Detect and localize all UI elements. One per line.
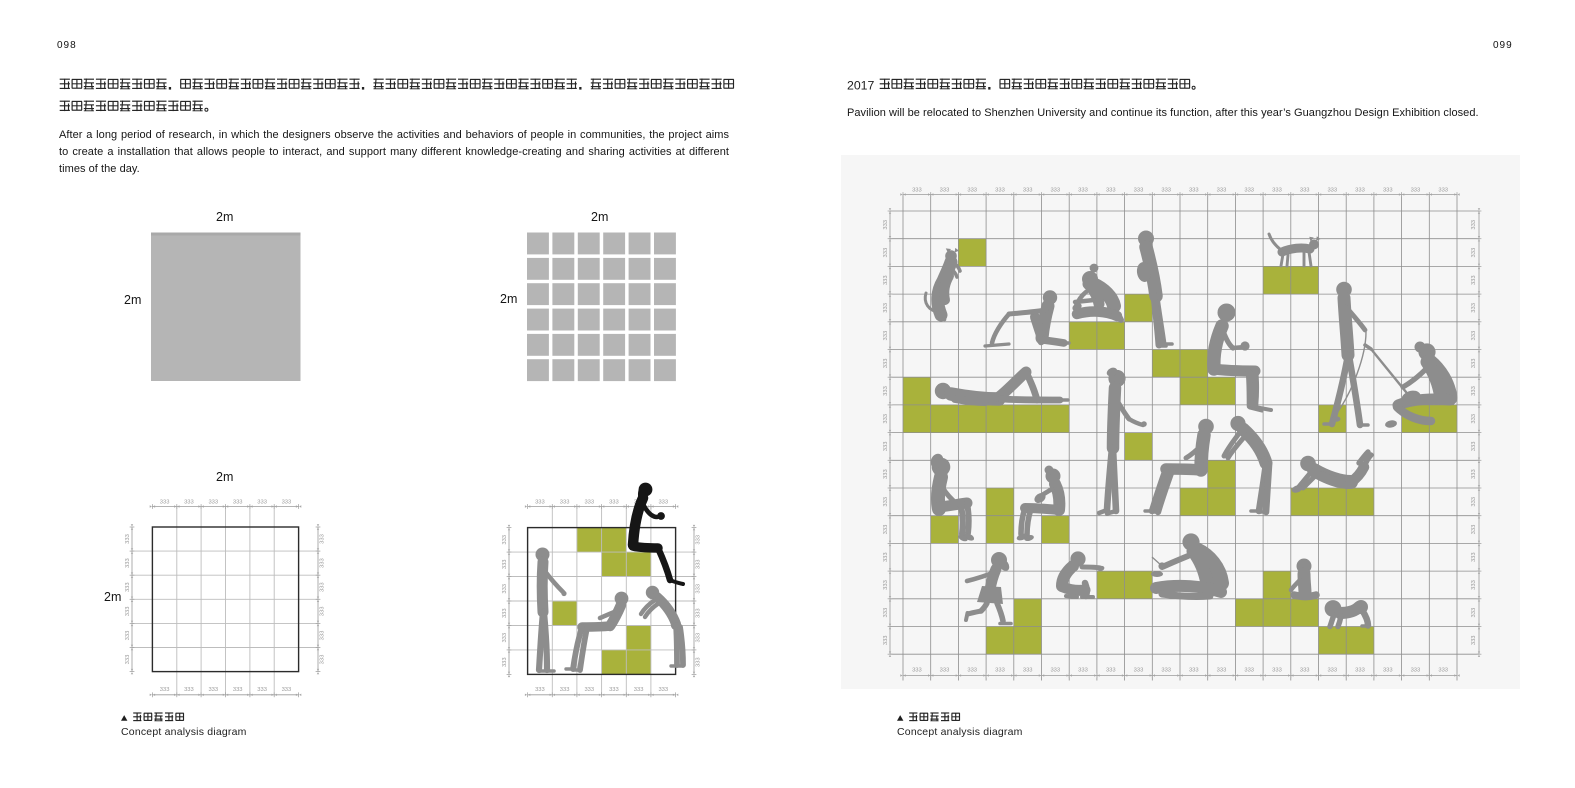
- svg-text:333: 333: [1217, 667, 1227, 673]
- svg-text:333: 333: [883, 469, 889, 479]
- svg-text:333: 333: [883, 525, 889, 535]
- svg-text:333: 333: [535, 499, 545, 505]
- svg-text:333: 333: [1471, 635, 1477, 645]
- svg-text:333: 333: [1383, 667, 1393, 673]
- svg-text:333: 333: [609, 499, 619, 505]
- svg-text:333: 333: [883, 386, 889, 396]
- svg-text:333: 333: [883, 248, 889, 258]
- svg-text:333: 333: [995, 187, 1005, 193]
- svg-text:333: 333: [502, 584, 508, 594]
- svg-text:333: 333: [184, 499, 194, 505]
- svg-text:333: 333: [967, 667, 977, 673]
- svg-text:333: 333: [1134, 187, 1144, 193]
- svg-text:333: 333: [125, 558, 131, 568]
- svg-text:333: 333: [320, 607, 326, 617]
- svg-text:333: 333: [125, 534, 131, 544]
- svg-text:333: 333: [1471, 248, 1477, 258]
- svg-text:333: 333: [1327, 187, 1337, 193]
- svg-text:333: 333: [995, 667, 1005, 673]
- svg-text:333: 333: [883, 359, 889, 369]
- svg-text:333: 333: [883, 442, 889, 452]
- svg-text:333: 333: [1134, 667, 1144, 673]
- svg-text:333: 333: [1471, 275, 1477, 285]
- svg-text:333: 333: [560, 687, 570, 693]
- svg-text:333: 333: [883, 608, 889, 618]
- svg-text:333: 333: [535, 687, 545, 693]
- svg-text:333: 333: [1355, 187, 1365, 193]
- svg-text:333: 333: [1471, 220, 1477, 230]
- svg-text:333: 333: [883, 220, 889, 230]
- svg-text:333: 333: [1383, 187, 1393, 193]
- svg-text:333: 333: [502, 657, 508, 667]
- svg-text:333: 333: [1272, 667, 1282, 673]
- svg-text:2017: 2017: [847, 79, 875, 93]
- svg-text:333: 333: [320, 582, 326, 592]
- svg-text:333: 333: [1471, 552, 1477, 562]
- svg-text:333: 333: [1471, 414, 1477, 424]
- svg-text:333: 333: [1438, 187, 1448, 193]
- svg-text:333: 333: [320, 631, 326, 641]
- svg-text:333: 333: [1050, 667, 1060, 673]
- svg-text:333: 333: [1244, 187, 1254, 193]
- svg-text:333: 333: [1471, 386, 1477, 396]
- svg-text:333: 333: [883, 497, 889, 507]
- svg-text:333: 333: [584, 499, 594, 505]
- svg-text:333: 333: [208, 687, 218, 693]
- svg-text:333: 333: [696, 535, 702, 545]
- svg-text:333: 333: [502, 633, 508, 643]
- svg-text:333: 333: [634, 687, 644, 693]
- svg-text:333: 333: [502, 559, 508, 569]
- svg-text:333: 333: [184, 687, 194, 693]
- svg-text:333: 333: [1300, 667, 1310, 673]
- svg-text:333: 333: [912, 187, 922, 193]
- svg-text:333: 333: [1471, 497, 1477, 507]
- svg-text:333: 333: [1217, 187, 1227, 193]
- svg-text:333: 333: [1411, 667, 1421, 673]
- svg-text:333: 333: [320, 534, 326, 544]
- svg-text:333: 333: [883, 275, 889, 285]
- svg-text:333: 333: [320, 558, 326, 568]
- svg-text:333: 333: [1161, 667, 1171, 673]
- svg-text:333: 333: [125, 607, 131, 617]
- svg-text:333: 333: [1161, 187, 1171, 193]
- svg-text:333: 333: [1471, 442, 1477, 452]
- svg-text:333: 333: [282, 687, 292, 693]
- svg-text:333: 333: [658, 499, 668, 505]
- svg-text:333: 333: [883, 635, 889, 645]
- svg-text:333: 333: [696, 657, 702, 667]
- svg-text:333: 333: [883, 580, 889, 590]
- svg-text:333: 333: [1471, 359, 1477, 369]
- svg-text:333: 333: [696, 608, 702, 618]
- svg-text:333: 333: [883, 331, 889, 341]
- svg-text:333: 333: [233, 499, 243, 505]
- svg-text:333: 333: [125, 655, 131, 665]
- svg-text:333: 333: [1411, 187, 1421, 193]
- svg-text:333: 333: [940, 667, 950, 673]
- svg-text:333: 333: [320, 655, 326, 665]
- svg-text:333: 333: [1272, 187, 1282, 193]
- svg-text:333: 333: [883, 414, 889, 424]
- svg-text:333: 333: [1106, 667, 1116, 673]
- svg-text:333: 333: [1078, 667, 1088, 673]
- svg-text:333: 333: [1078, 187, 1088, 193]
- svg-text:333: 333: [1471, 608, 1477, 618]
- svg-text:333: 333: [160, 499, 170, 505]
- svg-text:333: 333: [609, 687, 619, 693]
- svg-text:333: 333: [233, 687, 243, 693]
- svg-text:333: 333: [1471, 525, 1477, 535]
- svg-text:333: 333: [125, 631, 131, 641]
- svg-text:333: 333: [125, 582, 131, 592]
- svg-text:333: 333: [967, 187, 977, 193]
- svg-text:333: 333: [282, 499, 292, 505]
- svg-text:333: 333: [912, 667, 922, 673]
- svg-text:333: 333: [1471, 580, 1477, 590]
- svg-text:333: 333: [1189, 187, 1199, 193]
- svg-text:333: 333: [1471, 469, 1477, 479]
- svg-text:333: 333: [502, 535, 508, 545]
- svg-text:333: 333: [1438, 667, 1448, 673]
- svg-text:333: 333: [1023, 667, 1033, 673]
- svg-text:333: 333: [502, 608, 508, 618]
- svg-text:333: 333: [1106, 187, 1116, 193]
- svg-text:333: 333: [257, 687, 267, 693]
- svg-text:333: 333: [1050, 187, 1060, 193]
- svg-text:333: 333: [883, 552, 889, 562]
- svg-text:333: 333: [1023, 187, 1033, 193]
- svg-text:333: 333: [1300, 187, 1310, 193]
- svg-text:333: 333: [584, 687, 594, 693]
- svg-text:333: 333: [1471, 303, 1477, 313]
- svg-text:333: 333: [696, 559, 702, 569]
- svg-text:333: 333: [1355, 667, 1365, 673]
- svg-text:333: 333: [883, 303, 889, 313]
- svg-text:333: 333: [1471, 331, 1477, 341]
- svg-text:333: 333: [1244, 667, 1254, 673]
- svg-text:333: 333: [560, 499, 570, 505]
- svg-text:333: 333: [1327, 667, 1337, 673]
- svg-text:333: 333: [696, 633, 702, 643]
- svg-text:333: 333: [658, 687, 668, 693]
- svg-text:333: 333: [940, 187, 950, 193]
- svg-text:333: 333: [257, 499, 267, 505]
- svg-text:333: 333: [208, 499, 218, 505]
- svg-text:333: 333: [160, 687, 170, 693]
- svg-text:333: 333: [696, 584, 702, 594]
- svg-text:333: 333: [1189, 667, 1199, 673]
